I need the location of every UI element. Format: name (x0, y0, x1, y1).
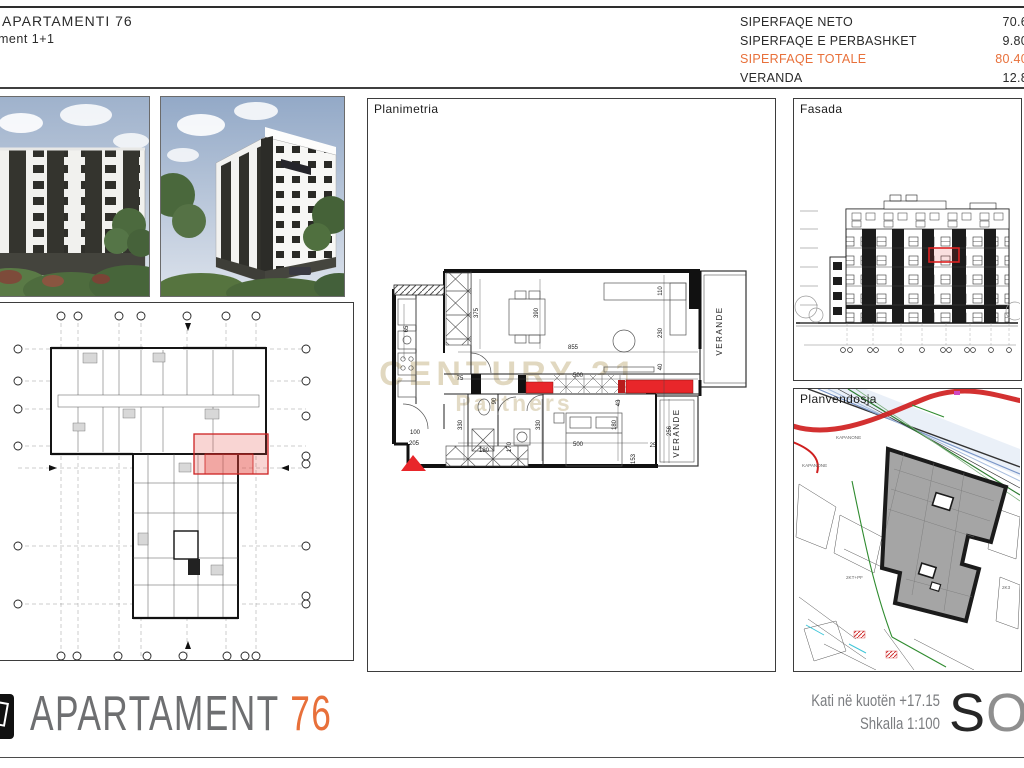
area-value: 70.6 (1002, 15, 1024, 29)
photo-building-front (0, 96, 150, 297)
header-left: APARTAMENTI 76 ment 1+1 (2, 13, 133, 46)
svg-text:75: 75 (457, 376, 464, 382)
scale-note: Shkalla 1:100 (860, 713, 940, 736)
svg-text:180: 180 (612, 419, 618, 430)
site-label: KAPANONE (802, 463, 827, 468)
brand-logo: SO (949, 686, 1024, 740)
verande-bottom-label: VERANDE (672, 408, 681, 457)
footer-title-number: 76 (290, 687, 332, 741)
area-value: 12.8 (1002, 71, 1024, 85)
footer-title-text: APARTAMENT (30, 687, 279, 741)
bottom-rule (0, 757, 1024, 758)
floorplan-overview-svg (0, 303, 354, 661)
wall-pier (689, 271, 700, 309)
apartment-type: ment 1+1 (0, 32, 133, 46)
svg-text:153: 153 (631, 453, 637, 464)
red-hatch-mark (886, 651, 897, 658)
footer-notes: Kati në kuotën +17.15 Shkalla 1:100 (779, 690, 940, 736)
panel-planvendosje: Planvendosja (793, 388, 1022, 672)
area-row: SIPERFAQE NETO 70.6 (740, 13, 1024, 32)
apartment-highlight-elevation (929, 248, 959, 262)
svg-text:330: 330 (536, 419, 542, 430)
svg-text:375: 375 (474, 307, 480, 318)
panel-planimetria: Planimetria CENT (367, 98, 776, 672)
area-row: VERANDA 12.8 (740, 69, 1024, 88)
cyan-marks (806, 625, 866, 653)
svg-text:43: 43 (616, 399, 622, 406)
photo-building-corner (160, 96, 345, 297)
area-value: 80.40 (995, 52, 1024, 66)
elevation-svg (794, 99, 1020, 379)
svg-text:65: 65 (404, 325, 410, 332)
dark-strips (846, 229, 1009, 323)
svg-text:500: 500 (573, 373, 584, 379)
apartment-highlight-inner (205, 454, 253, 474)
red-road-branch (794, 441, 818, 473)
site-label: 2KT+PF (846, 575, 863, 580)
svg-text:180: 180 (479, 448, 490, 454)
svg-text:855: 855 (568, 345, 579, 351)
century21-logo-mark (0, 694, 14, 739)
svg-text:110: 110 (658, 286, 664, 296)
project-title: APARTAMENTI 76 (2, 13, 133, 29)
svg-text:205: 205 (409, 441, 420, 447)
elev-grid (847, 323, 1009, 345)
area-value: 9.80 (1002, 34, 1024, 48)
svg-text:40: 40 (658, 363, 664, 370)
panel-planvendosje-label: Planvendosja (800, 392, 877, 406)
floor-note: Kati në kuotën +17.15 (811, 690, 940, 713)
panel-floorplan-overview (0, 302, 354, 661)
site-label: KAPANONE (836, 435, 861, 440)
logo-glyph (0, 701, 9, 727)
magenta-mark (954, 391, 960, 395)
elev-grid-bubbles (841, 348, 1012, 353)
svg-text:170: 170 (507, 441, 513, 452)
area-label: SIPERFAQE TOTALE (740, 52, 866, 66)
svg-text:100: 100 (410, 430, 421, 436)
panel-planimetria-label: Planimetria (374, 102, 438, 116)
top-rule (0, 6, 1024, 8)
svg-text:90: 90 (492, 397, 498, 404)
hatched-wall (394, 285, 444, 295)
area-label: SIPERFAQE NETO (740, 15, 853, 29)
building-render-2 (161, 97, 345, 297)
apartment-plan-svg: CENTURY 21 Partners VERANDE VERANDE (368, 99, 774, 670)
svg-text:500: 500 (573, 442, 584, 448)
svg-text:330: 330 (458, 419, 464, 430)
verande-top-label: VERANDE (715, 306, 724, 355)
site-label: 2K3 (1002, 585, 1011, 590)
svg-text:25: 25 (650, 443, 657, 449)
entrance-arrow (401, 455, 426, 471)
area-row: SIPERFAQE E PERBASHKET 9.80 (740, 32, 1024, 51)
area-label: VERANDA (740, 71, 803, 85)
brand-letter-o: O (986, 683, 1024, 743)
svg-text:230: 230 (658, 327, 664, 338)
panel-fasada-label: Fasada (800, 102, 842, 116)
footer-title: APARTAMENT 76 (30, 686, 450, 742)
red-hatch-mark (854, 631, 865, 638)
svg-text:256: 256 (667, 425, 673, 436)
level-ticks (800, 211, 818, 323)
site-plan-svg: KAPANONE KAPANONE 2KT+PF 2K3 (794, 389, 1020, 670)
drawing-sheet: APARTAMENTI 76 ment 1+1 SIPERFAQE NETO 7… (0, 0, 1024, 768)
area-table: SIPERFAQE NETO 70.6 SIPERFAQE E PERBASHK… (740, 13, 1024, 87)
header-divider (0, 87, 1024, 89)
area-row-total: SIPERFAQE TOTALE 80.40 (740, 50, 1024, 69)
brand-letter-s: S (949, 683, 986, 743)
building-render-1 (0, 97, 150, 297)
svg-text:390: 390 (534, 307, 540, 318)
area-label: SIPERFAQE E PERBASHKET (740, 34, 917, 48)
panel-fasada: Fasada (793, 98, 1022, 381)
